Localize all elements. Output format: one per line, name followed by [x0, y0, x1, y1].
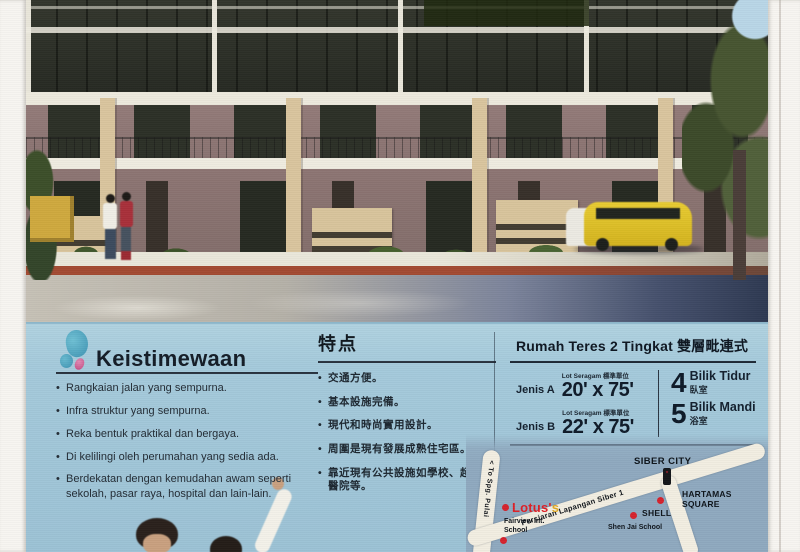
brick-paving-strip — [26, 266, 768, 275]
upper-floor-window-grille — [26, 0, 768, 92]
person-torso — [120, 201, 133, 227]
person-hair — [122, 192, 131, 201]
person-legs — [121, 227, 131, 251]
bedroom-label-zh: 臥室 — [690, 383, 751, 396]
lotus-label-suffix: s — [552, 500, 559, 515]
road-to-spg-pulai-label: < To Spg. Pulai — [482, 460, 495, 518]
bathroom-count: 5 Bilik Mandi 浴室 — [671, 401, 756, 427]
person-white-jacket — [102, 194, 118, 264]
lotus-poi: Lotus's — [502, 500, 559, 515]
feature-item: 交通方便。 — [318, 372, 496, 386]
map-marker-dot — [502, 504, 509, 511]
jenis-a-label: Jenis A — [516, 384, 555, 400]
kerb-wall — [26, 252, 768, 266]
spec-counts: 4 Bilik Tidur 臥室 5 Bilik Mandi 浴室 — [659, 370, 756, 437]
features-malay-section: Keistimewaan Rangkaian jalan yang sempur… — [56, 330, 318, 510]
person-hair — [106, 194, 115, 203]
features-malay-heading: Keistimewaan — [96, 348, 246, 370]
person-torso — [103, 203, 117, 229]
bathroom-labels: Bilik Mandi 浴室 — [690, 401, 756, 427]
fairview-school-label: Fairview Int. School — [504, 518, 556, 536]
location-map: < To Spg. Pulai Persiaran Lapangan Siber… — [466, 434, 768, 552]
feature-item: Infra struktur yang sempurna. — [56, 404, 318, 419]
person-hair — [210, 536, 242, 552]
shell-label: SHELL — [642, 508, 671, 518]
yellow-wall-left — [30, 196, 74, 242]
bathroom-label-zh: 浴室 — [690, 414, 756, 427]
features-malay-list: Rangkaian jalan yang sempurna. Infra str… — [56, 381, 318, 502]
terrace-houses-photo — [26, 0, 768, 322]
person-red-top — [119, 192, 133, 264]
roof-beam — [26, 6, 768, 9]
features-chinese-heading: 特点 — [318, 330, 496, 363]
person-boots — [121, 251, 131, 260]
feature-item: Berdekatan dengan kemudahan awam seperti… — [56, 472, 318, 502]
map-marker-dot — [500, 537, 507, 544]
spec-row-jenis-b: Jenis B Lot Seragam 標準單位 22' x 75' — [516, 407, 654, 437]
map-marker-dot — [657, 497, 664, 504]
map-marker-dot — [630, 512, 637, 519]
scan-margin-right — [768, 0, 800, 552]
logo-blob-teal-small — [60, 354, 73, 368]
features-malay-heading-row: Keistimewaan — [56, 330, 318, 374]
feature-item: Rangkaian jalan yang sempurna. — [56, 381, 318, 396]
car-wheel — [596, 238, 609, 251]
upper-beam — [26, 27, 768, 33]
spec-heading: Rumah Teres 2 Tingkat 雙層毗連式 — [510, 332, 756, 363]
info-panel: Keistimewaan Rangkaian jalan yang sempur… — [26, 322, 768, 552]
lotus-label-main: Lotus' — [512, 500, 552, 515]
bathroom-label: Bilik Mandi — [690, 401, 756, 414]
bedroom-number: 4 — [671, 371, 687, 395]
bedroom-label: Bilik Tidur — [690, 370, 751, 383]
jenis-a-size: 20' x 75' — [562, 380, 634, 400]
yellow-car — [584, 202, 692, 246]
tree-trunk — [733, 150, 746, 280]
hartamas-square-label: HARTAMAS SQUARE — [682, 490, 744, 510]
car-wheel — [665, 238, 678, 251]
roof-recess — [424, 0, 589, 26]
feature-item: 現代和時尚實用設計。 — [318, 419, 496, 433]
person-face — [143, 534, 171, 552]
person-legs — [105, 229, 116, 259]
scan-margin-left — [0, 0, 26, 552]
shen-jai-school-label: Shen Jai School — [608, 524, 672, 531]
bedroom-labels: Bilik Tidur 臥室 — [690, 370, 751, 396]
page-edge-shadow — [779, 0, 781, 552]
spec-section: Rumah Teres 2 Tingkat 雙層毗連式 Jenis A Lot … — [510, 332, 756, 446]
siber-city-label: SIBER CITY — [634, 456, 691, 467]
jenis-a-size-block: Lot Seragam 標準單位 20' x 75' — [562, 370, 634, 400]
feature-item: Reka bentuk praktikal dan bergaya. — [56, 427, 318, 442]
feature-item: 基本設施完備。 — [318, 396, 496, 410]
spec-row-jenis-a: Jenis A Lot Seragam 標準單位 20' x 75' — [516, 370, 654, 400]
traffic-light-icon — [663, 468, 671, 485]
logo-blob-pink — [73, 357, 86, 372]
bedroom-count: 4 Bilik Tidur 臥室 — [671, 370, 756, 396]
street-road — [26, 275, 768, 322]
trees-right — [682, 0, 768, 268]
developer-logo — [56, 330, 90, 370]
jenis-b-size-block: Lot Seragam 標準單位 22' x 75' — [562, 407, 634, 437]
feature-item: Di kelilingi oleh perumahan yang sedia a… — [56, 450, 318, 465]
spec-rows: Jenis A Lot Seragam 標準單位 20' x 75' Jenis… — [516, 370, 659, 437]
bathroom-number: 5 — [671, 402, 687, 426]
lotus-label: Lotus's — [512, 500, 559, 515]
brochure-page: Keistimewaan Rangkaian jalan yang sempur… — [0, 0, 800, 552]
